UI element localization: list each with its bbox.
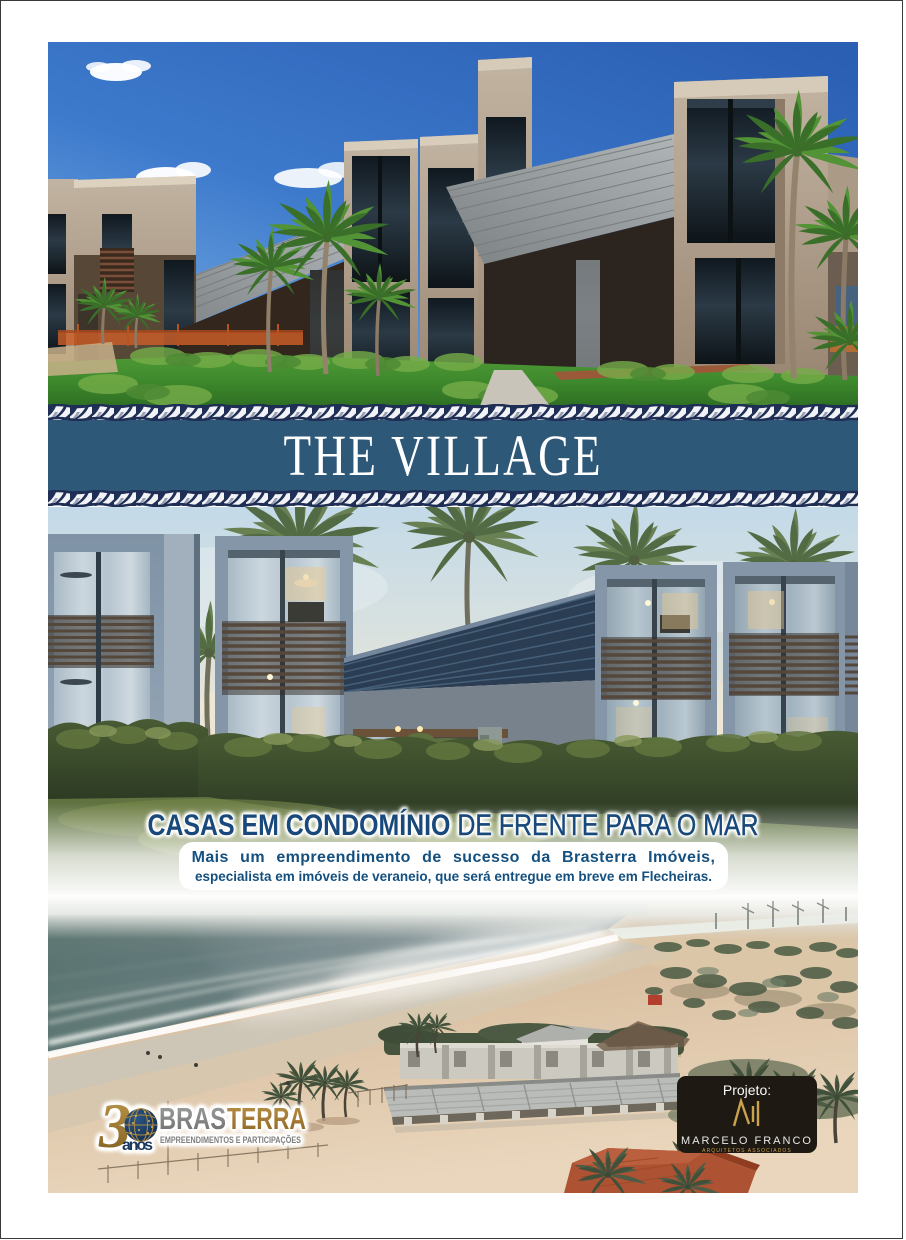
- svg-text:TERRA: TERRA: [227, 1101, 306, 1136]
- svg-text:BRAS: BRAS: [159, 1101, 226, 1136]
- svg-text:anos: anos: [122, 1137, 153, 1154]
- svg-text:EMPREENDIMENTOS E PARTICIPAÇÕE: EMPREENDIMENTOS E PARTICIPAÇÕES: [160, 1135, 301, 1145]
